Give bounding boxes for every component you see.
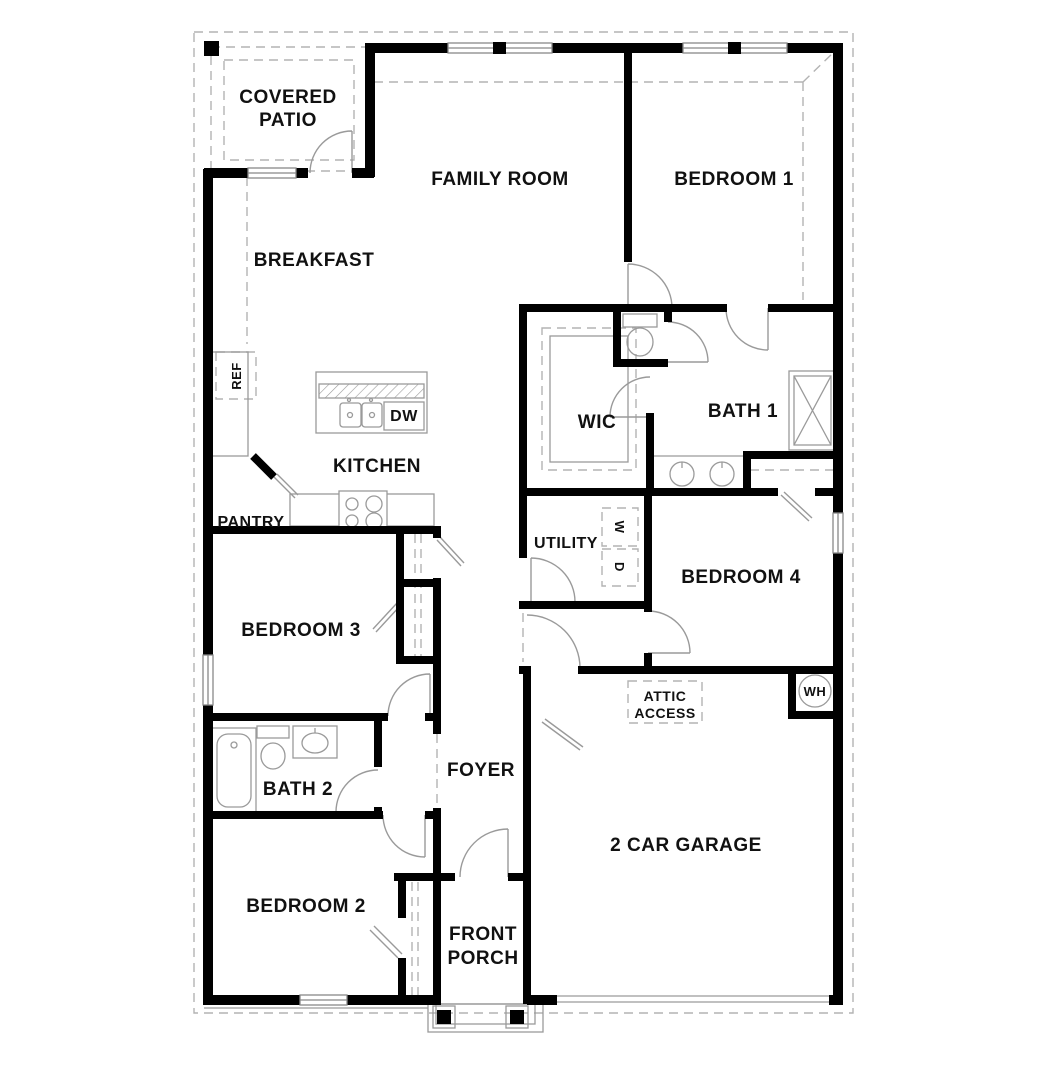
bath2-toilet-tank [257, 726, 289, 738]
room-label-bath1: BATH 1 [708, 401, 778, 422]
label-attic-access-1: ATTIC [644, 688, 687, 704]
kitchen-sink-left-bowl [340, 403, 361, 427]
bedroom1-door-swing [628, 264, 672, 308]
island-bar-hatch [319, 384, 424, 398]
room-label-kitchen: KITCHEN [333, 456, 421, 477]
bedroom3-door-swing [388, 674, 430, 716]
porch-post-left [437, 1010, 451, 1024]
room-label-foyer: FOYER [447, 760, 515, 781]
bedroom3-closet-door [373, 603, 400, 632]
room-label-covered-patio-1: COVERED [239, 87, 336, 108]
garage-door-lines [557, 996, 829, 1002]
room-label-bath2: BATH 2 [263, 779, 333, 800]
patio-door-swing [310, 131, 352, 173]
room-label-garage: 2 CAR GARAGE [610, 835, 762, 856]
label-dishwasher: DW [390, 408, 418, 425]
family-window-mullion [493, 42, 506, 54]
bedroom4-closet-door [781, 492, 812, 521]
room-label-bedroom4: BEDROOM 4 [681, 567, 801, 588]
label-dryer: D [612, 562, 627, 572]
sink-faucet-right [370, 399, 373, 402]
floor-plan-page: COVERED PATIO FAMILY ROOM BEDROOM 1 BREA… [0, 0, 1050, 1070]
bath2-tub-inner [217, 734, 251, 807]
pantry-angled-wall [253, 456, 274, 477]
wic-shelf-dashed [542, 328, 636, 470]
patio-outline-dashed [211, 47, 366, 171]
front-door-swing [460, 829, 508, 877]
toilet-room-door-swing [668, 322, 708, 362]
floor-plan-drawing: COVERED PATIO FAMILY ROOM BEDROOM 1 BREA… [0, 0, 1050, 1070]
patio-post [204, 41, 219, 56]
room-label-breakfast: BREAKFAST [254, 250, 375, 271]
room-label-wic: WIC [578, 412, 616, 433]
closet-rod-lines [412, 534, 421, 996]
bath2-sink [302, 733, 328, 753]
sink-faucet-left [348, 399, 351, 402]
bath2-toilet-bowl [261, 743, 285, 769]
room-label-covered-patio-2: PATIO [259, 110, 317, 131]
bedroom2-door-swing [383, 815, 425, 857]
room-label-bedroom1: BEDROOM 1 [674, 169, 794, 190]
bath1-toilet-bowl [627, 328, 653, 356]
sink-drain-left [348, 413, 353, 418]
utility-door-swing [531, 558, 575, 602]
hall-closet-door [437, 537, 464, 566]
room-label-front-porch-1: FRONT [449, 924, 517, 945]
bath2-tub [212, 728, 256, 813]
bedroom1-window-mullion [728, 42, 741, 54]
label-water-heater: WH [804, 684, 827, 699]
bath1-toilet-tank [623, 314, 657, 327]
bedroom4-door-swing [648, 611, 690, 653]
room-label-front-porch-2: PORCH [447, 948, 518, 969]
label-refrigerator: REF [229, 362, 244, 390]
bath1-hall-door-swing [726, 308, 768, 350]
bedroom2-closet-door [370, 926, 402, 958]
bath2-tub-drain [231, 742, 237, 748]
bath2-door-swing [336, 770, 378, 812]
porch-post-right [510, 1010, 524, 1024]
room-label-bedroom3: BEDROOM 3 [241, 620, 361, 641]
room-label-utility: UTILITY [534, 535, 598, 552]
room-label-bedroom2: BEDROOM 2 [246, 896, 366, 917]
garage-entry-door-swing [527, 615, 583, 750]
kitchen-sink-right-bowl [362, 403, 382, 427]
sink-drain-right [370, 413, 375, 418]
wic-door-swing [610, 377, 650, 417]
label-washer: W [612, 521, 627, 534]
room-label-pantry: PANTRY [218, 514, 285, 531]
label-attic-access-2: ACCESS [634, 705, 695, 721]
room-label-family-room: FAMILY ROOM [431, 169, 568, 190]
bath1-shower-x [794, 376, 831, 445]
